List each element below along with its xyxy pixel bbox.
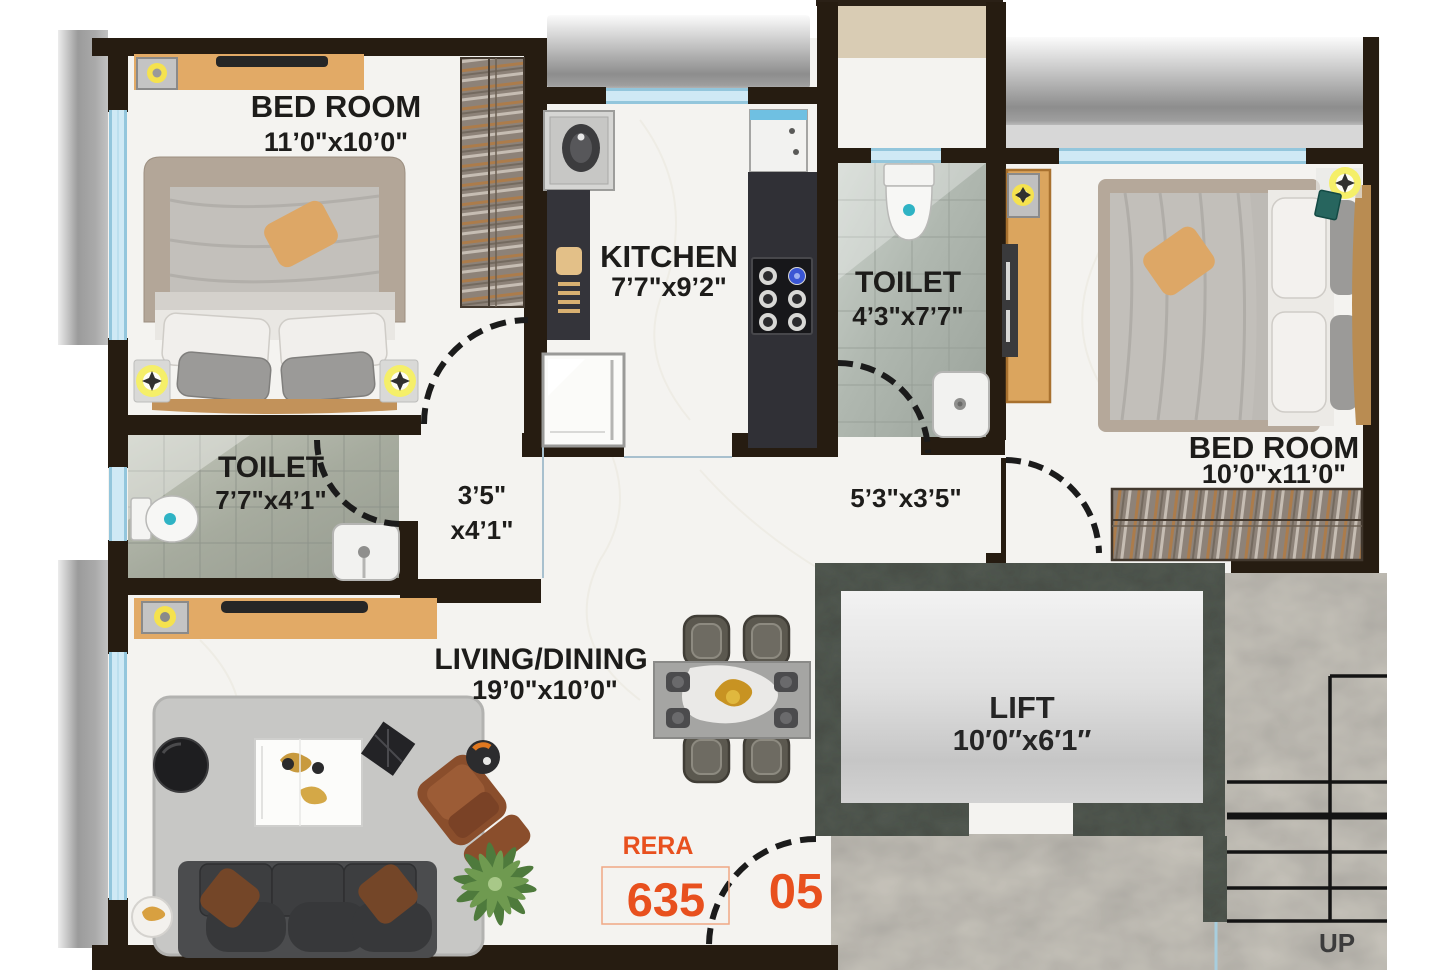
svg-text:BED ROOM: BED ROOM <box>251 89 422 124</box>
svg-text:5ʼ3"x3ʼ5": 5ʼ3"x3ʼ5" <box>850 483 961 513</box>
svg-text:TOILET: TOILET <box>218 451 324 484</box>
svg-text:LIFT: LIFT <box>989 690 1054 725</box>
svg-text:TOILET: TOILET <box>855 266 961 299</box>
svg-text:4ʼ3"x7ʼ7": 4ʼ3"x7ʼ7" <box>852 301 963 331</box>
svg-text:7ʼ7"x4ʼ1": 7ʼ7"x4ʼ1" <box>215 485 326 515</box>
svg-text:UP: UP <box>1319 928 1355 958</box>
svg-text:LIVING/DINING: LIVING/DINING <box>434 643 647 676</box>
svg-text:05: 05 <box>769 865 824 919</box>
svg-text:11ʼ0"x10ʼ0": 11ʼ0"x10ʼ0" <box>264 127 408 157</box>
svg-text:3ʼ5": 3ʼ5" <box>458 480 506 510</box>
svg-text:7ʼ7"x9ʼ2": 7ʼ7"x9ʼ2" <box>611 272 727 302</box>
svg-text:RERA: RERA <box>623 832 694 860</box>
svg-text:KITCHEN: KITCHEN <box>600 239 738 274</box>
svg-text:10′0″x6′1″: 10′0″x6′1″ <box>953 725 1092 757</box>
svg-text:19ʼ0"x10ʼ0": 19ʼ0"x10ʼ0" <box>472 675 618 705</box>
svg-text:635: 635 <box>627 873 705 926</box>
svg-text:x4ʼ1": x4ʼ1" <box>451 515 514 545</box>
svg-text:10ʼ0"x11ʼ0": 10ʼ0"x11ʼ0" <box>1202 459 1346 489</box>
